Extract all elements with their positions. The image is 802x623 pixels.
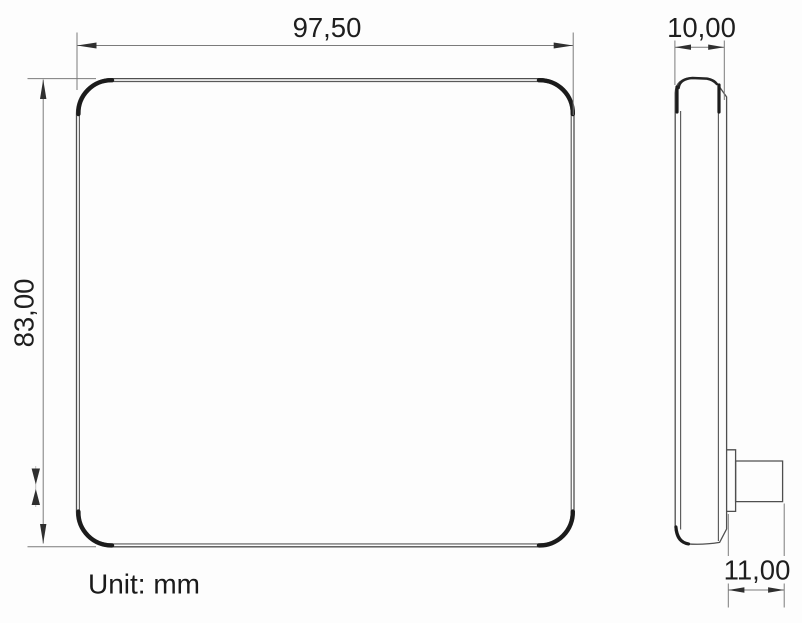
protrusion-arrow-left-icon [728,587,744,592]
width-arrow-right-icon [554,43,574,49]
side-view-protrusion [736,461,783,502]
corner-arc-top-left [78,80,112,114]
dimension-front-height: 83,00 [9,79,97,547]
side-view [675,78,782,545]
corner-arc-top-right [539,80,573,114]
drawing-canvas: 97,50 83,00 10,00 [0,0,802,623]
protrusion-arrow-right-icon [768,587,784,592]
dimension-side-protrusion: 11,00 [724,504,791,608]
technical-drawing: 97,50 83,00 10,00 [0,0,802,623]
small-dimension-arrow-up-icon [32,489,40,505]
height-arrow-bottom-icon [40,524,46,544]
corner-arc-bottom-right [539,512,573,546]
thickness-arrow-right-icon [708,45,724,50]
thickness-dimension-value: 10,00 [667,12,736,43]
width-dimension-value: 97,50 [293,12,362,43]
side-view-top-edge-accent [679,78,717,88]
side-view-bottom-front-accent [676,527,689,544]
front-view-outline-outer [77,79,575,547]
protrusion-dimension-value: 11,00 [724,555,791,586]
side-view-step-tab [727,450,736,512]
dimension-front-width: 97,50 [77,12,573,115]
height-dimension-value: 83,00 [9,279,40,348]
thickness-arrow-left-icon [675,45,691,50]
height-arrow-top-icon [40,80,46,100]
corner-arc-bottom-left [78,512,112,546]
front-view-outline-inner [79,82,571,544]
small-dimension-arrow-down-icon [32,469,40,485]
front-view [77,79,575,547]
width-arrow-left-icon [77,43,97,49]
unit-note: Unit: mm [88,569,200,600]
